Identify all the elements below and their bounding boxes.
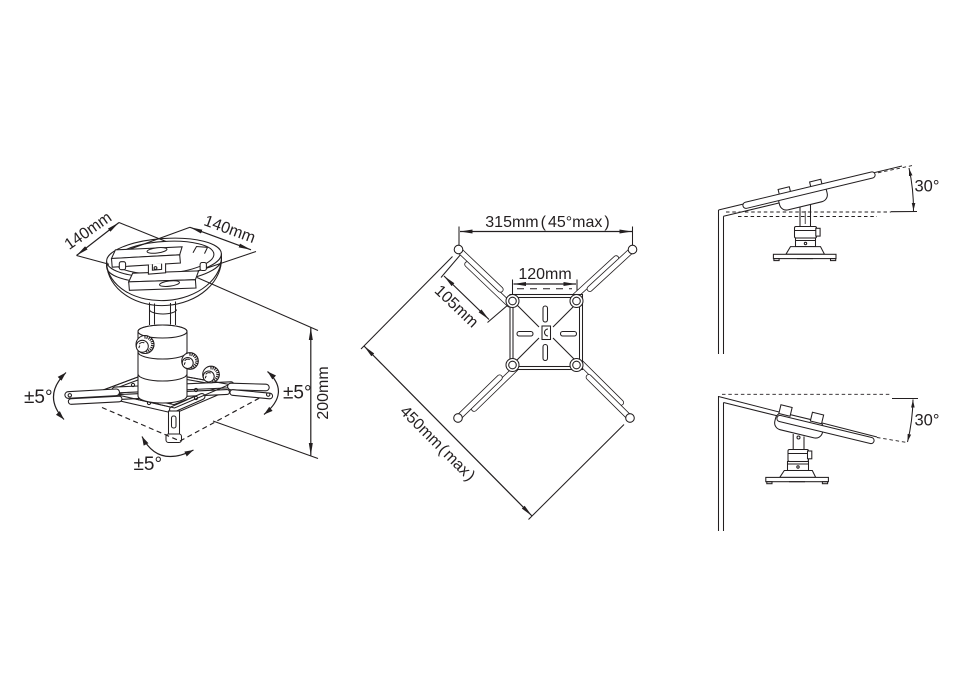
svg-text:200mm: 200mm	[315, 366, 332, 419]
svg-text:315mm(45°max): 315mm(45°max)	[485, 214, 609, 231]
svg-text:105mm: 105mm	[431, 282, 481, 331]
svg-text:30°: 30°	[915, 412, 940, 430]
svg-text:450mm(max): 450mm(max)	[396, 403, 478, 485]
svg-text:±5°: ±5°	[283, 383, 312, 404]
svg-text:30°: 30°	[915, 178, 940, 196]
svg-text:±5°: ±5°	[24, 387, 53, 408]
svg-text:120mm: 120mm	[518, 266, 571, 283]
svg-text:±5°: ±5°	[134, 454, 163, 475]
